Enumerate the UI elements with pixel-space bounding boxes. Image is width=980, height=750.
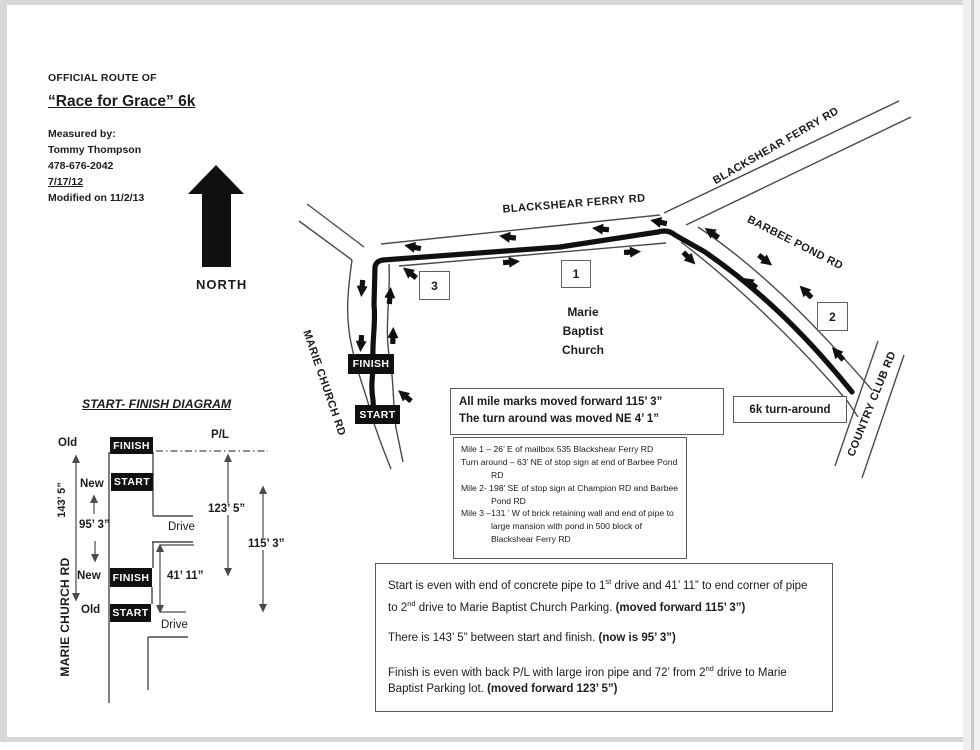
mile-marker-1: 1 [561,260,591,288]
diagram-start-new-box: START [111,473,153,491]
summary-paragraph-distance: There is 143’ 5” between start and finis… [388,630,820,647]
dimension-123: 123’ 5” [206,503,247,515]
mile-desc-1: Mile 1 – 26’ E of mailbox 535 Blackshear… [461,443,679,456]
diagram-finish-old-box: FINISH [110,437,153,454]
note-line1: All mile marks moved forward 115’ 3” [459,394,715,411]
document-header: OFFICIAL ROUTE OF “Race for Grace” 6k Me… [48,72,195,206]
diagram-finish-new-box: FINISH [110,568,152,587]
measure-date: 7/17/12 [48,174,195,190]
church-line2: Baptist [543,322,623,341]
mile-marks-note-box: All mile marks moved forward 115’ 3” The… [450,388,724,435]
dimension-95: 95’ 3” [79,519,110,531]
modified-date: Modified on 11/2/13 [48,190,195,206]
old-label-top: Old [58,437,77,449]
dimension-41: 41’ 11” [167,570,203,582]
summary-box: Start is even with end of concrete pipe … [375,563,833,712]
turnaround-box: 6k turn-around [733,396,847,423]
church-line1: Marie [543,303,623,322]
mile-description-box: Mile 1 – 26’ E of mailbox 535 Blackshear… [453,437,687,559]
old-label-bottom: Old [81,604,100,616]
mile-desc-2: Mile 2- 198’ SE of stop sign at Champion… [461,482,679,508]
mile-desc-turnaround: Turn around – 63’ NE of stop sign at end… [461,456,679,482]
diagram-road-label: MARIE CHURCH RD [58,557,72,676]
new-label-top: New [80,478,104,490]
summary-paragraph-finish: Finish is even with back P/L with large … [388,660,820,699]
scanned-route-document: OFFICIAL ROUTE OF “Race for Grace” 6k Me… [0,0,980,750]
dimension-115: 115’ 3” [246,538,286,550]
north-label: NORTH [196,277,247,292]
measurer-phone: 478-676-2042 [48,158,195,174]
race-title: “Race for Grace” 6k [48,93,195,111]
north-arrow-icon [188,165,244,267]
mile-marker-3: 3 [419,271,450,300]
measured-by-label: Measured by: [48,126,195,142]
new-label-bottom: New [77,570,101,582]
drive-label-top: Drive [168,521,195,533]
church-name: Marie Baptist Church [543,303,623,360]
map-start-box: START [355,405,400,424]
header-kicker: OFFICIAL ROUTE OF [48,72,195,84]
note-line2: The turn around was moved NE 4’ 1” [459,411,715,428]
mile-desc-3: Mile 3 –131 ’ W of brick retaining wall … [461,507,679,546]
drive-label-bottom: Drive [161,619,188,631]
diagram-title: START- FINISH DIAGRAM [82,397,231,411]
measurer-name: Tommy Thompson [48,142,195,158]
church-line3: Church [543,341,623,360]
diagram-start-old-box: START [110,604,151,622]
dimension-143: 143’ 5” [56,482,68,517]
mile-marker-2: 2 [817,302,848,331]
summary-paragraph-start: Start is even with end of concrete pipe … [388,573,820,617]
map-finish-box: FINISH [348,354,394,374]
property-line-label: P/L [211,429,229,441]
